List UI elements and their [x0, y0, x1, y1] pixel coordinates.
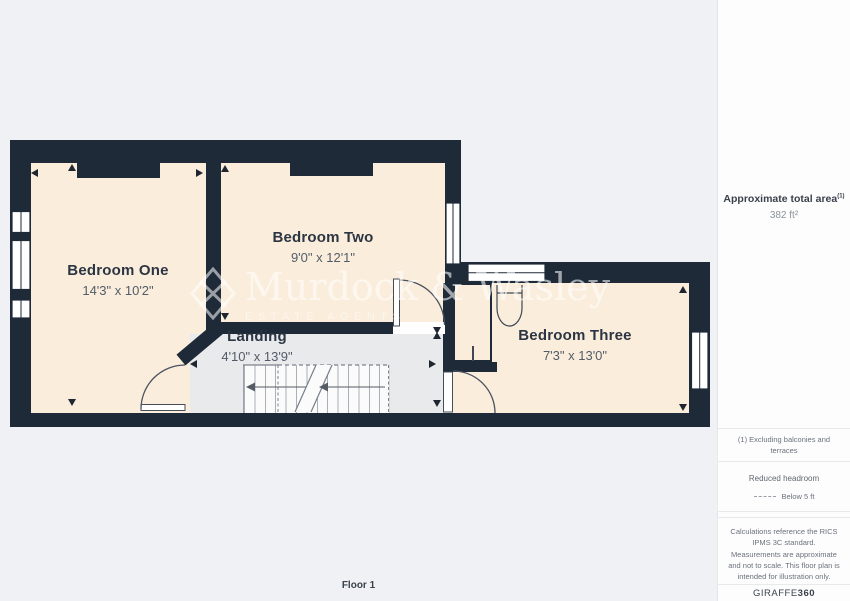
bedroom-three-name: Bedroom Three: [485, 327, 665, 344]
total-area-block: Approximate total area(1) 382 ft²: [718, 193, 850, 221]
wall-right: [689, 262, 710, 427]
bedroom-three-dimensions: 7'3" x 13'0": [485, 348, 665, 363]
total-area-value: 382 ft²: [718, 210, 850, 221]
note-exclusions-box: (1) Excluding balconies and terraces: [717, 428, 850, 462]
room-label-landing: Landing 4'10" x 13'9": [198, 328, 316, 364]
reduced-headroom-legend: Below 5 ft: [718, 492, 850, 501]
wall-wc-bottom: [443, 362, 497, 372]
wall-bottom: [10, 413, 710, 427]
bedroom-one-dimensions: 14'3" x 10'2": [28, 283, 208, 298]
landing-name: Landing: [198, 328, 316, 345]
total-area-title-text: Approximate total area: [723, 193, 837, 205]
total-area-note-ref: (1): [837, 194, 844, 200]
floorplan-canvas: Murdock & Wasley ESTATE AGENTS Bedroom O…: [0, 0, 850, 601]
disclaimer-box: Calculations reference the RICS IPMS 3C …: [717, 517, 850, 585]
watermark-brand: Murdock & Wasley: [245, 267, 610, 309]
room-label-bedroom-two: Bedroom Two 9'0" x 12'1": [233, 229, 413, 265]
cubicle-divider: [472, 346, 474, 361]
note-exclusions-text: (1) Excluding balconies and terraces: [726, 434, 842, 457]
door-opening-bedroom-two: [393, 322, 445, 334]
bedroom-two-name: Bedroom Two: [233, 229, 413, 246]
room-label-bedroom-three: Bedroom Three 7'3" x 13'0": [485, 327, 665, 363]
total-area-title: Approximate total area(1): [718, 193, 850, 205]
room-label-bedroom-one: Bedroom One 14'3" x 10'2": [28, 262, 208, 298]
chimney-breast-bedroom-one: [77, 162, 160, 178]
giraffe360-brand: GIRAFFE360: [727, 588, 841, 599]
bedroom-one-name: Bedroom One: [28, 262, 208, 279]
dashed-line-icon: [754, 496, 776, 497]
staircase: [243, 365, 390, 413]
giraffe360-brand-suffix: 360: [798, 588, 815, 599]
murdock-wasley-watermark: Murdock & Wasley ESTATE AGENTS: [190, 267, 610, 323]
reduced-headroom-legend-text: Below 5 ft: [782, 492, 815, 501]
sidebar: Approximate total area(1) 382 ft² (1) Ex…: [717, 0, 850, 601]
floor-label: Floor 1: [0, 580, 717, 591]
landing-dimensions: 4'10" x 13'9": [198, 349, 316, 364]
reduced-headroom-box: Reduced headroom Below 5 ft: [717, 461, 850, 512]
watermark-tagline: ESTATE AGENTS: [245, 311, 610, 323]
chimney-breast-bedroom-two: [290, 162, 373, 176]
wall-top: [10, 140, 461, 163]
disclaimer-text: Calculations reference the RICS IPMS 3C …: [727, 526, 841, 582]
reduced-headroom-title: Reduced headroom: [718, 474, 850, 483]
bedroom-two-dimensions: 9'0" x 12'1": [233, 250, 413, 265]
giraffe360-brand-name: GIRAFFE: [753, 588, 798, 599]
